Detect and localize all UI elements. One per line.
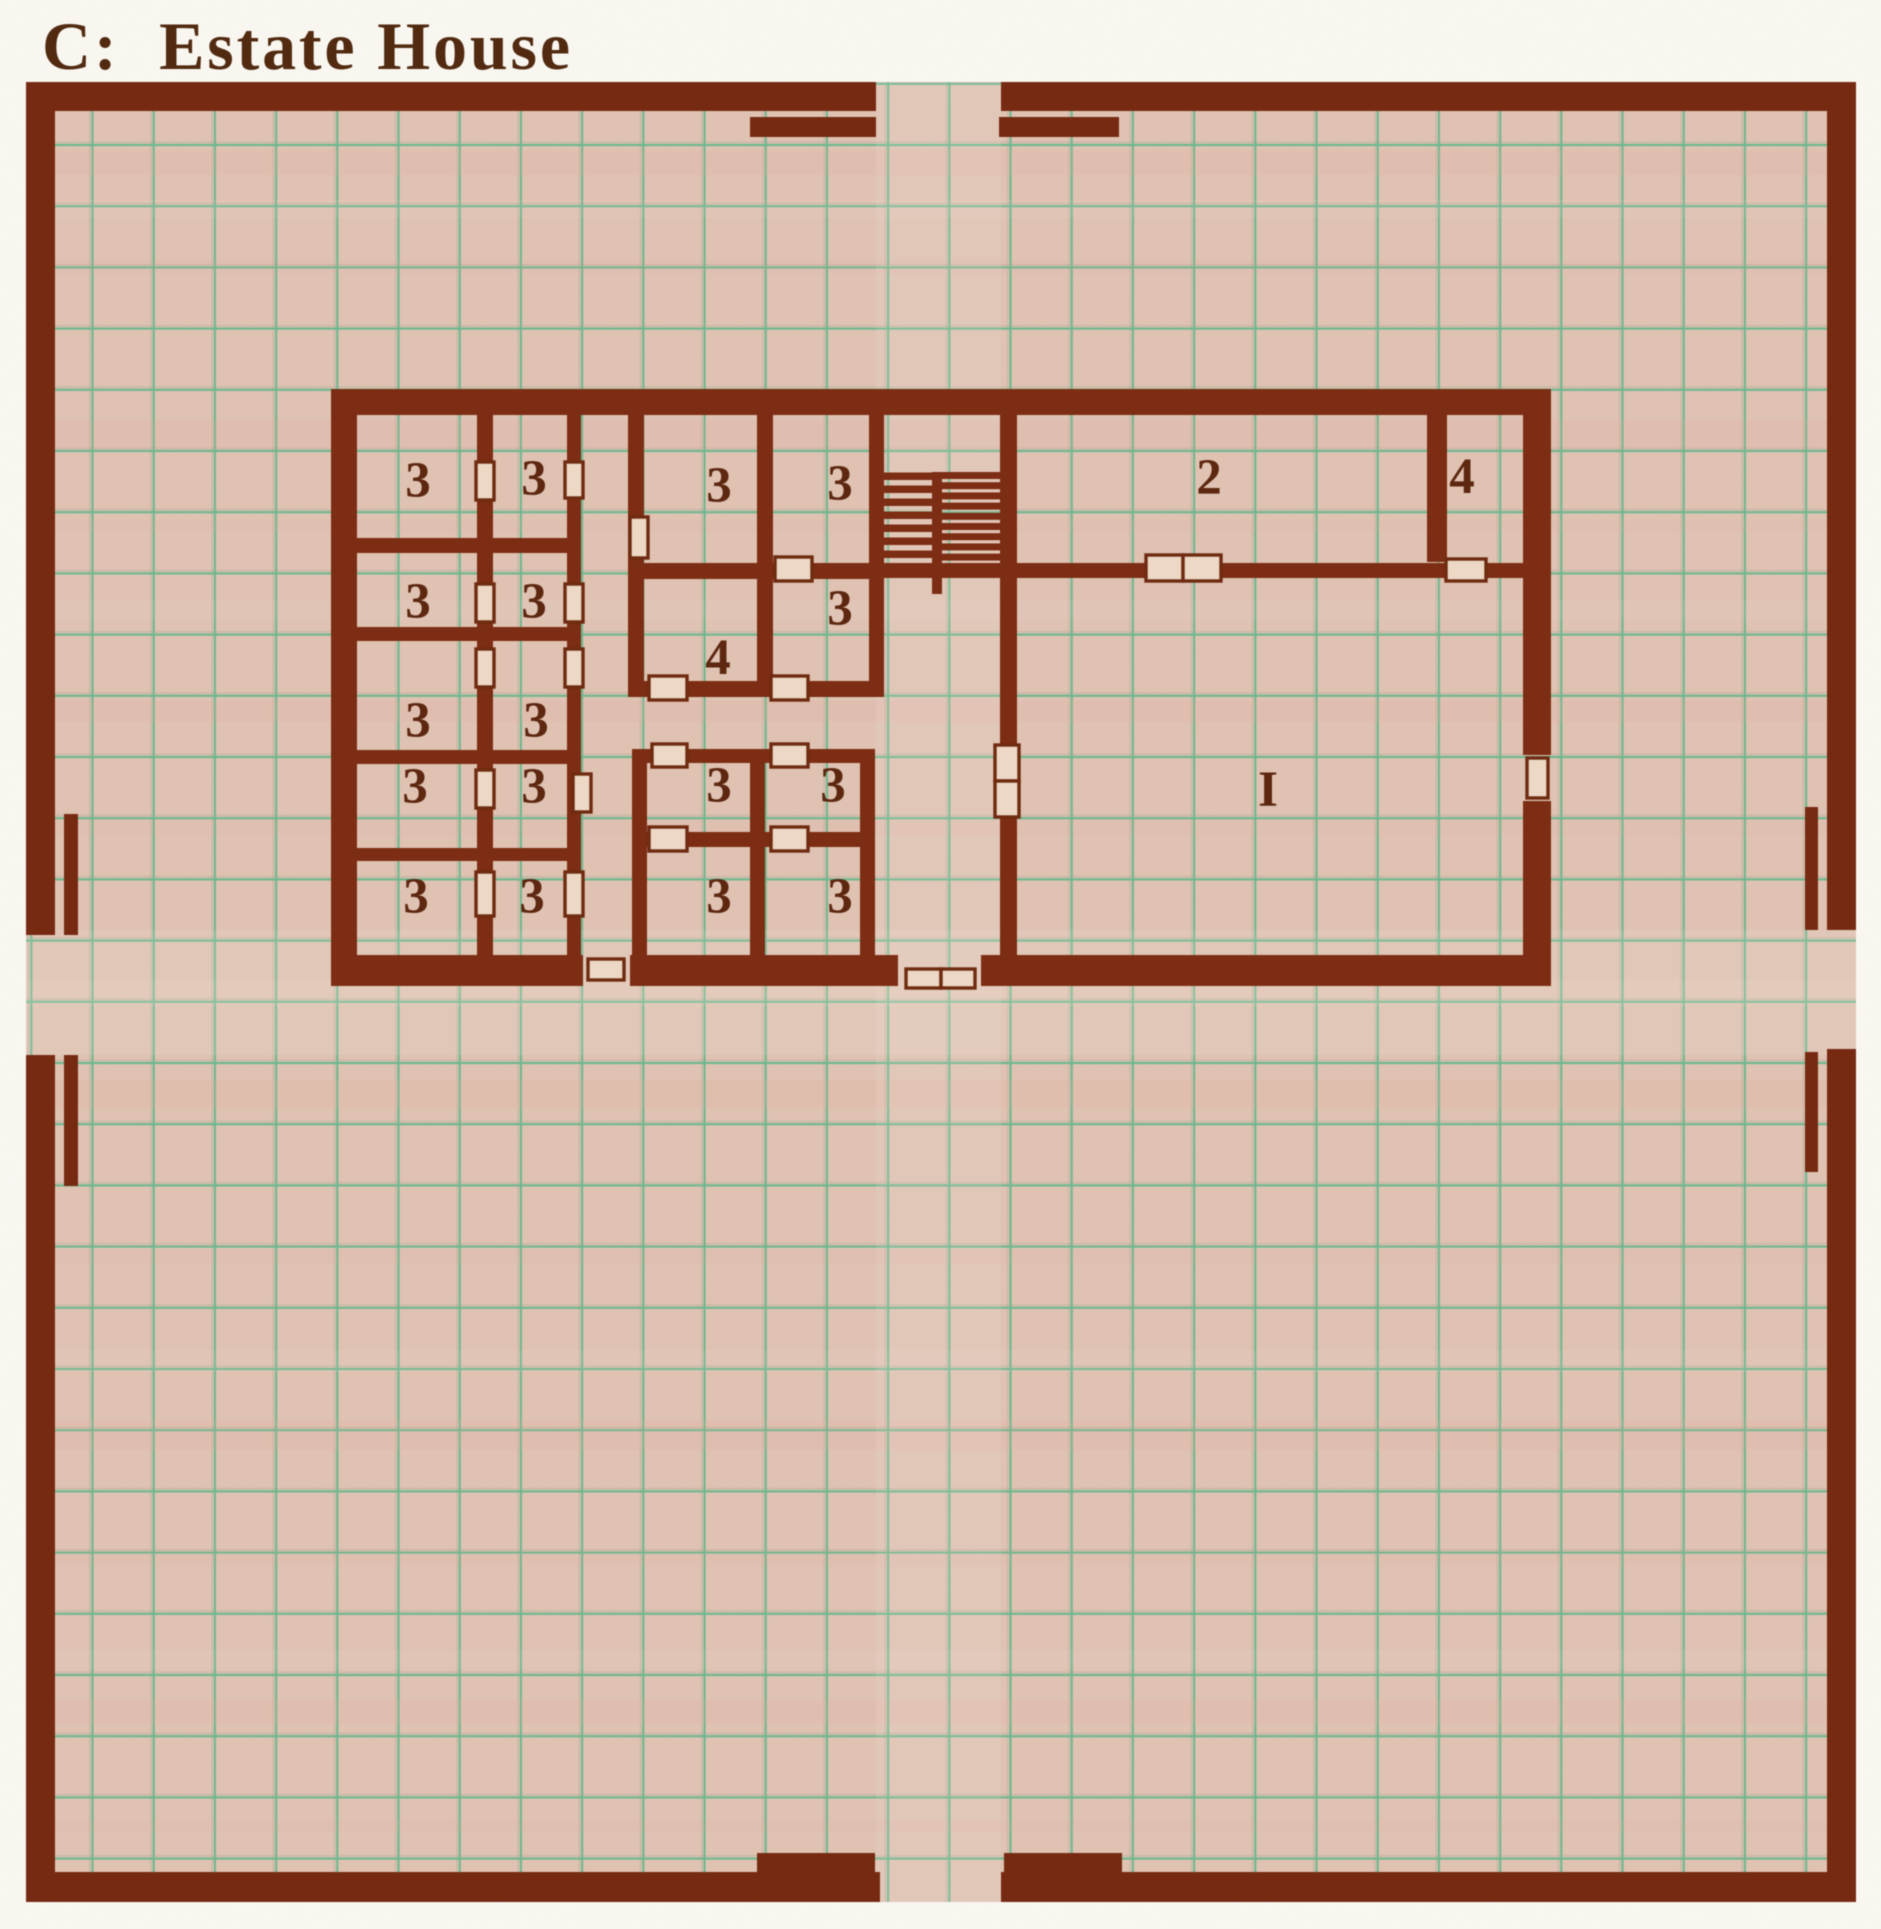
svg-text:3: 3 [403,869,429,925]
svg-text:C: Estate House: C: Estate House [42,8,570,84]
svg-text:3: 3 [523,693,549,749]
svg-text:3: 3 [521,759,547,815]
svg-text:3: 3 [519,869,545,925]
svg-text:3: 3 [402,759,428,815]
svg-text:3: 3 [706,869,732,925]
svg-text:3: 3 [827,869,853,925]
svg-text:3: 3 [405,693,431,749]
svg-text:3: 3 [405,574,431,630]
svg-text:3: 3 [706,758,732,814]
svg-text:3: 3 [521,574,547,630]
svg-text:3: 3 [405,453,431,509]
svg-text:3: 3 [521,451,547,507]
svg-text:3: 3 [706,458,732,514]
svg-text:I: I [1258,762,1278,818]
svg-text:2: 2 [1196,450,1222,506]
svg-text:4: 4 [1449,449,1475,505]
svg-text:4: 4 [705,630,731,686]
svg-text:3: 3 [820,758,846,814]
svg-text:3: 3 [827,581,853,637]
svg-text:3: 3 [827,456,853,512]
